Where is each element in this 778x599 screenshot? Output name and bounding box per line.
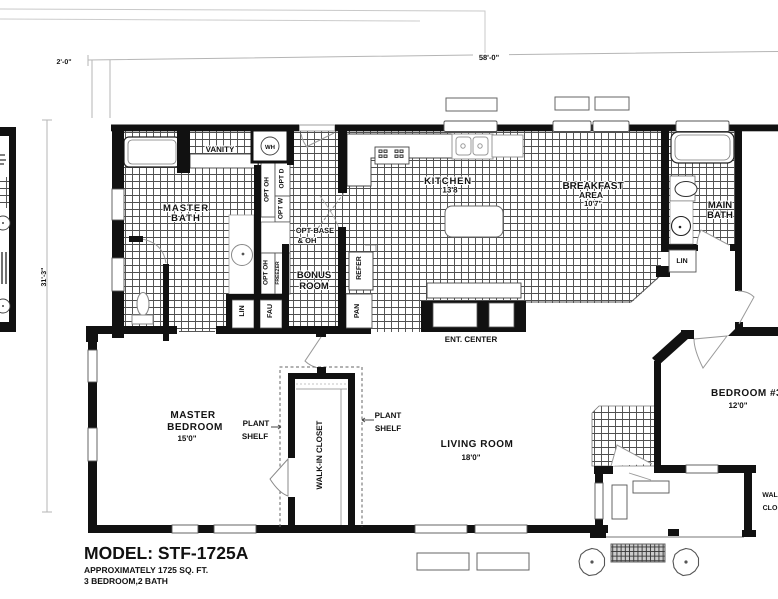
svg-text:ENT. CENTER: ENT. CENTER (445, 335, 498, 344)
svg-text:18'0": 18'0" (461, 453, 480, 462)
svg-text:3 BEDROOM,2 BATH: 3 BEDROOM,2 BATH (84, 576, 168, 586)
svg-text:VANITY: VANITY (206, 145, 235, 154)
svg-text:13'8: 13'8 (442, 186, 458, 195)
svg-text:OPT W: OPT W (278, 197, 285, 219)
svg-text:BONUS: BONUS (297, 270, 331, 281)
svg-text:OPT OH: OPT OH (264, 177, 271, 202)
svg-text:58'-0": 58'-0" (479, 53, 500, 62)
svg-text:BEDROOM: BEDROOM (167, 422, 223, 433)
svg-text:APPROXIMATELY 1725 SQ. FT.: APPROXIMATELY 1725 SQ. FT. (84, 565, 208, 575)
svg-text:31'-3": 31'-3" (41, 268, 48, 287)
svg-text:BATH: BATH (171, 213, 201, 224)
svg-text:2'-0": 2'-0" (56, 59, 71, 66)
svg-text:BEDROOM #3: BEDROOM #3 (711, 388, 778, 399)
svg-text:12'0": 12'0" (728, 401, 747, 410)
svg-text:10'7": 10'7" (584, 199, 602, 208)
svg-text:& OH: & OH (298, 236, 317, 245)
svg-text:MODEL: STF-1725A: MODEL: STF-1725A (84, 543, 249, 563)
svg-text:OPT D: OPT D (279, 168, 286, 188)
svg-text:WAL: WAL (762, 492, 778, 499)
svg-text:CLO: CLO (763, 505, 778, 512)
svg-text:PLANT: PLANT (375, 411, 402, 420)
svg-text:REFER: REFER (356, 256, 363, 280)
svg-text:OPT OH: OPT OH (263, 260, 270, 285)
svg-text:WH: WH (265, 144, 275, 151)
svg-text:SHELF: SHELF (375, 424, 401, 433)
svg-text:FREEZER: FREEZER (275, 261, 281, 285)
svg-text:LIVING ROOM: LIVING ROOM (441, 439, 514, 450)
svg-text:PLANT: PLANT (243, 419, 270, 428)
svg-text:SHELF: SHELF (242, 432, 268, 441)
svg-text:OPT BASE: OPT BASE (296, 226, 334, 235)
svg-text:PAN: PAN (354, 304, 361, 318)
svg-text:LIN: LIN (239, 305, 246, 316)
svg-text:MASTER: MASTER (170, 410, 216, 421)
svg-text:ROOM: ROOM (299, 281, 329, 292)
svg-text:LIN: LIN (676, 258, 687, 265)
svg-text:FAU: FAU (267, 304, 274, 318)
svg-text:15'0": 15'0" (177, 434, 196, 443)
svg-text:BATH: BATH (707, 210, 733, 221)
svg-text:WALK-IN CLOSET: WALK-IN CLOSET (315, 420, 324, 489)
